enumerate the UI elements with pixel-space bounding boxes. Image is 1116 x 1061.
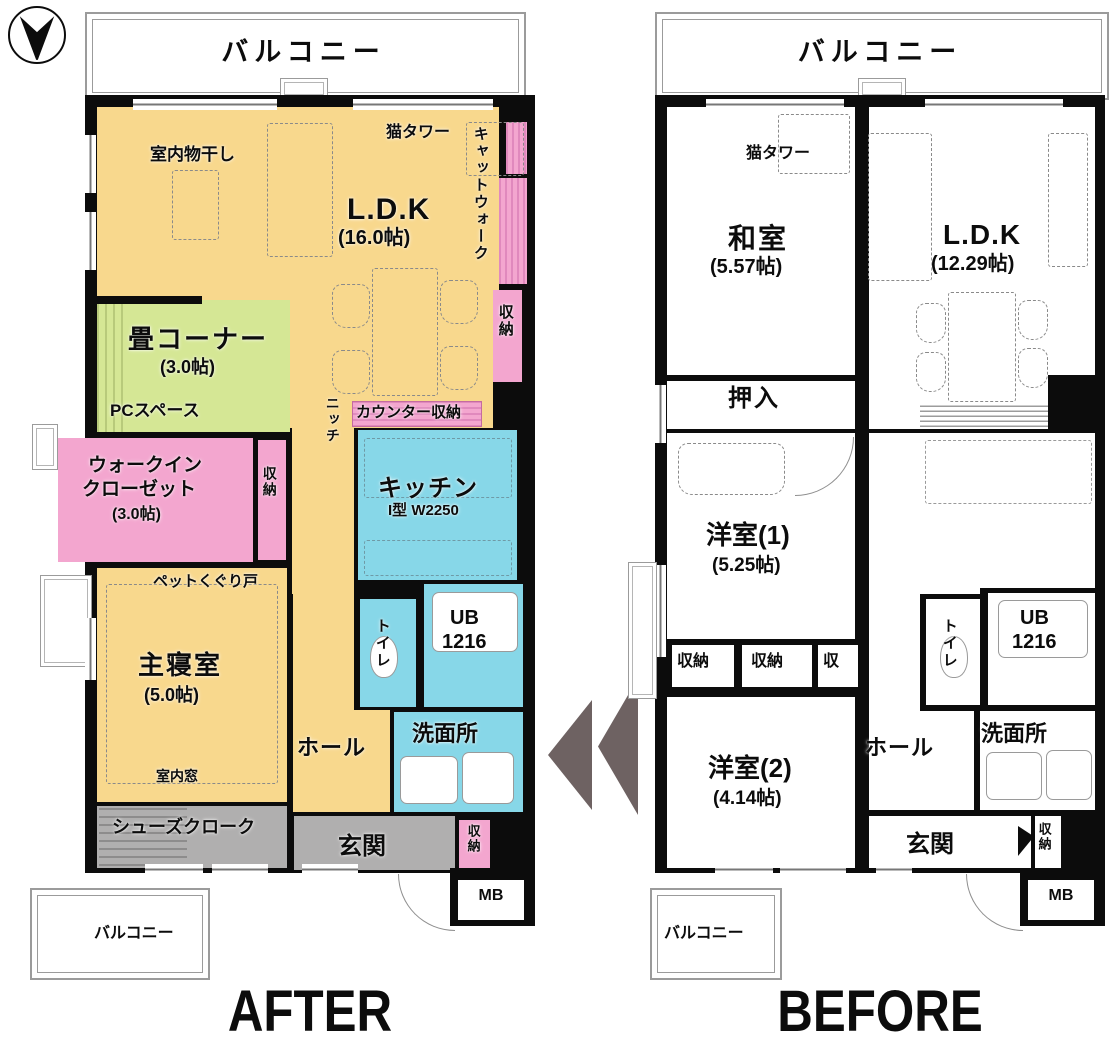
after-bedroom-size-label: (5.0帖) — [144, 686, 199, 705]
before-sofa — [868, 133, 932, 281]
before-wall-toilet-ub — [980, 588, 988, 710]
after-room-hall-upper — [293, 594, 354, 712]
after-window-bottom-2 — [212, 864, 268, 875]
after-hall-label: ホール — [297, 736, 366, 759]
after-wic-size-label: (3.0帖) — [112, 507, 161, 524]
before-washitsu-label: 和室 — [728, 224, 788, 253]
before-entry-door-arc — [966, 874, 1023, 931]
before-washer — [1046, 750, 1092, 800]
after-catwalk-shelf — [499, 178, 527, 284]
before-window-bottom-1 — [715, 864, 773, 875]
before-hall-label: ホール — [865, 736, 934, 759]
after-chair-1 — [332, 284, 370, 328]
before-window-bottom-3 — [876, 864, 912, 875]
after-washer — [462, 752, 514, 804]
after-mb-label: MB — [458, 888, 524, 905]
before-wall-toilet-left — [920, 594, 926, 710]
after-bedroom-label: 主寝室 — [138, 652, 222, 679]
after-chair-2 — [332, 350, 370, 394]
arrow-left-small — [548, 700, 592, 810]
after-title: AFTER — [119, 978, 502, 1045]
after-bay-window-upper — [32, 424, 58, 470]
after-laundry-label: 室内物干し — [150, 146, 235, 164]
after-pet-door-label: ペットくぐり戸 — [153, 574, 258, 590]
before-bay-window — [628, 562, 657, 699]
before-tv-board — [1048, 133, 1088, 267]
before-wall-washroom-left — [974, 711, 980, 810]
before-storage-3-label: 収 — [823, 654, 839, 671]
before-balcony-top-label: バルコニー — [655, 38, 1105, 66]
after-wic-label-line2: クローゼット — [82, 480, 196, 500]
after-cat-tower-label: 猫タワー — [386, 125, 450, 142]
after-chair-4 — [440, 346, 478, 390]
before-dining-table — [948, 292, 1016, 402]
before-washbasin — [986, 752, 1042, 800]
before-window-bottom-2 — [780, 864, 846, 875]
floor-plan-comparison: バルコニー 室内物干し — [0, 0, 1116, 1061]
after-entrance-label: 玄関 — [338, 834, 386, 859]
after-counter-storage-label: カウンター収納 — [356, 405, 461, 421]
after-window-bottom-1 — [145, 864, 203, 875]
after-kitchen-label: キッチン — [378, 476, 478, 501]
before-kitchen-counter-hatch — [920, 403, 1048, 427]
before-chair-4 — [1018, 348, 1048, 388]
after-niche-label: ニッチ — [325, 396, 340, 460]
before-window-top-2 — [925, 99, 1063, 110]
after-washroom-label: 洗面所 — [412, 722, 478, 745]
north-arrow-needle — [16, 11, 57, 61]
before-cat-tower-box — [778, 114, 850, 174]
after-wic-label-line1: ウォークイン — [88, 456, 202, 476]
before-yoshitsu1-label: 洋室(1) — [706, 522, 790, 549]
after-pc-space-label: PCスペース — [110, 402, 200, 420]
after-entry-door-arc — [398, 874, 455, 931]
after-storage-right-label: 収納 — [497, 304, 513, 370]
before-balcony-bottom-label: バルコニー — [664, 926, 744, 943]
after-tatami-label: 畳コーナー — [128, 326, 268, 353]
after-room-hall-lower — [293, 710, 390, 812]
after-balcony-top-label: バルコニー — [85, 38, 522, 66]
after-window-left-3 — [85, 618, 96, 680]
before-chair-3 — [1018, 300, 1048, 340]
after-sofa — [267, 123, 333, 257]
before-scooter — [678, 443, 785, 495]
after-window-bottom-3 — [302, 864, 358, 875]
before-yoshitsu2-size-label: (4.14帖) — [713, 789, 782, 809]
after-catwalk-label: キャットウォーク — [472, 126, 488, 286]
after-ldk-label: L.D.K — [347, 194, 430, 226]
after-washbasin — [400, 756, 458, 804]
before-wall-ub-top — [986, 588, 1095, 593]
after-toilet-label: トイレ — [374, 618, 390, 698]
before-title: BEFORE — [689, 978, 1072, 1045]
before-wall-washroom-top — [920, 705, 1095, 711]
before-storage-2-label: 収納 — [751, 654, 783, 671]
after-ub-label-line2: 1216 — [442, 632, 487, 653]
before-window-top-1 — [706, 99, 844, 110]
before-chair-2 — [916, 352, 946, 392]
before-washroom-label: 洗面所 — [981, 722, 1047, 745]
before-chair-1 — [916, 303, 946, 343]
before-yoshitsu2-label: 洋室(2) — [708, 755, 792, 782]
after-tatami-size-label: (3.0帖) — [160, 358, 215, 377]
after-shoes-cloak-label: シューズクローク — [112, 818, 255, 837]
after-storage-entrance-label: 収納 — [466, 824, 480, 878]
before-ub-label-line2: 1216 — [1012, 632, 1057, 653]
after-bed — [106, 584, 278, 784]
after-balcony-bottom-label: バルコニー — [94, 926, 174, 943]
before-window-left-1 — [655, 385, 666, 443]
before-oshiire-label: 押入 — [728, 386, 780, 411]
after-laundry-rack — [172, 170, 219, 240]
before-ldk-size-label: (12.29帖) — [931, 254, 1014, 275]
after-wall-tatami-top — [97, 296, 202, 304]
after-kitchen-island — [364, 540, 512, 576]
before-wall-toilet-top — [920, 594, 986, 599]
after-dining-table — [372, 268, 438, 396]
before-entrance-label: 玄関 — [906, 832, 954, 857]
before-storage-1-label: 収納 — [677, 654, 709, 671]
after-room-niche-corridor — [292, 428, 354, 594]
after-interior-window-label: 室内窓 — [156, 769, 198, 784]
after-storage-wic-label: 収納 — [262, 466, 277, 528]
before-kitchen-counter — [925, 440, 1092, 504]
before-cat-tower-label: 猫タワー — [746, 146, 810, 163]
before-ldk-pipe-space — [1048, 375, 1095, 429]
after-ldk-size-label: (16.0帖) — [338, 228, 410, 249]
before-ldk-label: L.D.K — [943, 220, 1021, 249]
before-toilet-label: トイレ — [941, 618, 957, 698]
after-window-left-1 — [85, 135, 96, 193]
after-window-left-2 — [85, 212, 96, 270]
north-arrow-icon — [8, 6, 66, 64]
after-chair-3 — [440, 280, 478, 324]
after-window-top-2 — [353, 99, 493, 110]
after-ub-label-line1: UB — [450, 608, 479, 629]
before-washitsu-size-label: (5.57帖) — [710, 257, 782, 278]
before-yoshitsu1-size-label: (5.25帖) — [712, 556, 781, 576]
before-ub-label-line1: UB — [1020, 608, 1049, 629]
after-kitchen-spec-label: I型 W2250 — [388, 503, 459, 519]
after-window-top-1 — [133, 99, 277, 110]
before-storage-entrance-label: 収納 — [1037, 822, 1051, 876]
before-mb-label: MB — [1028, 888, 1094, 905]
